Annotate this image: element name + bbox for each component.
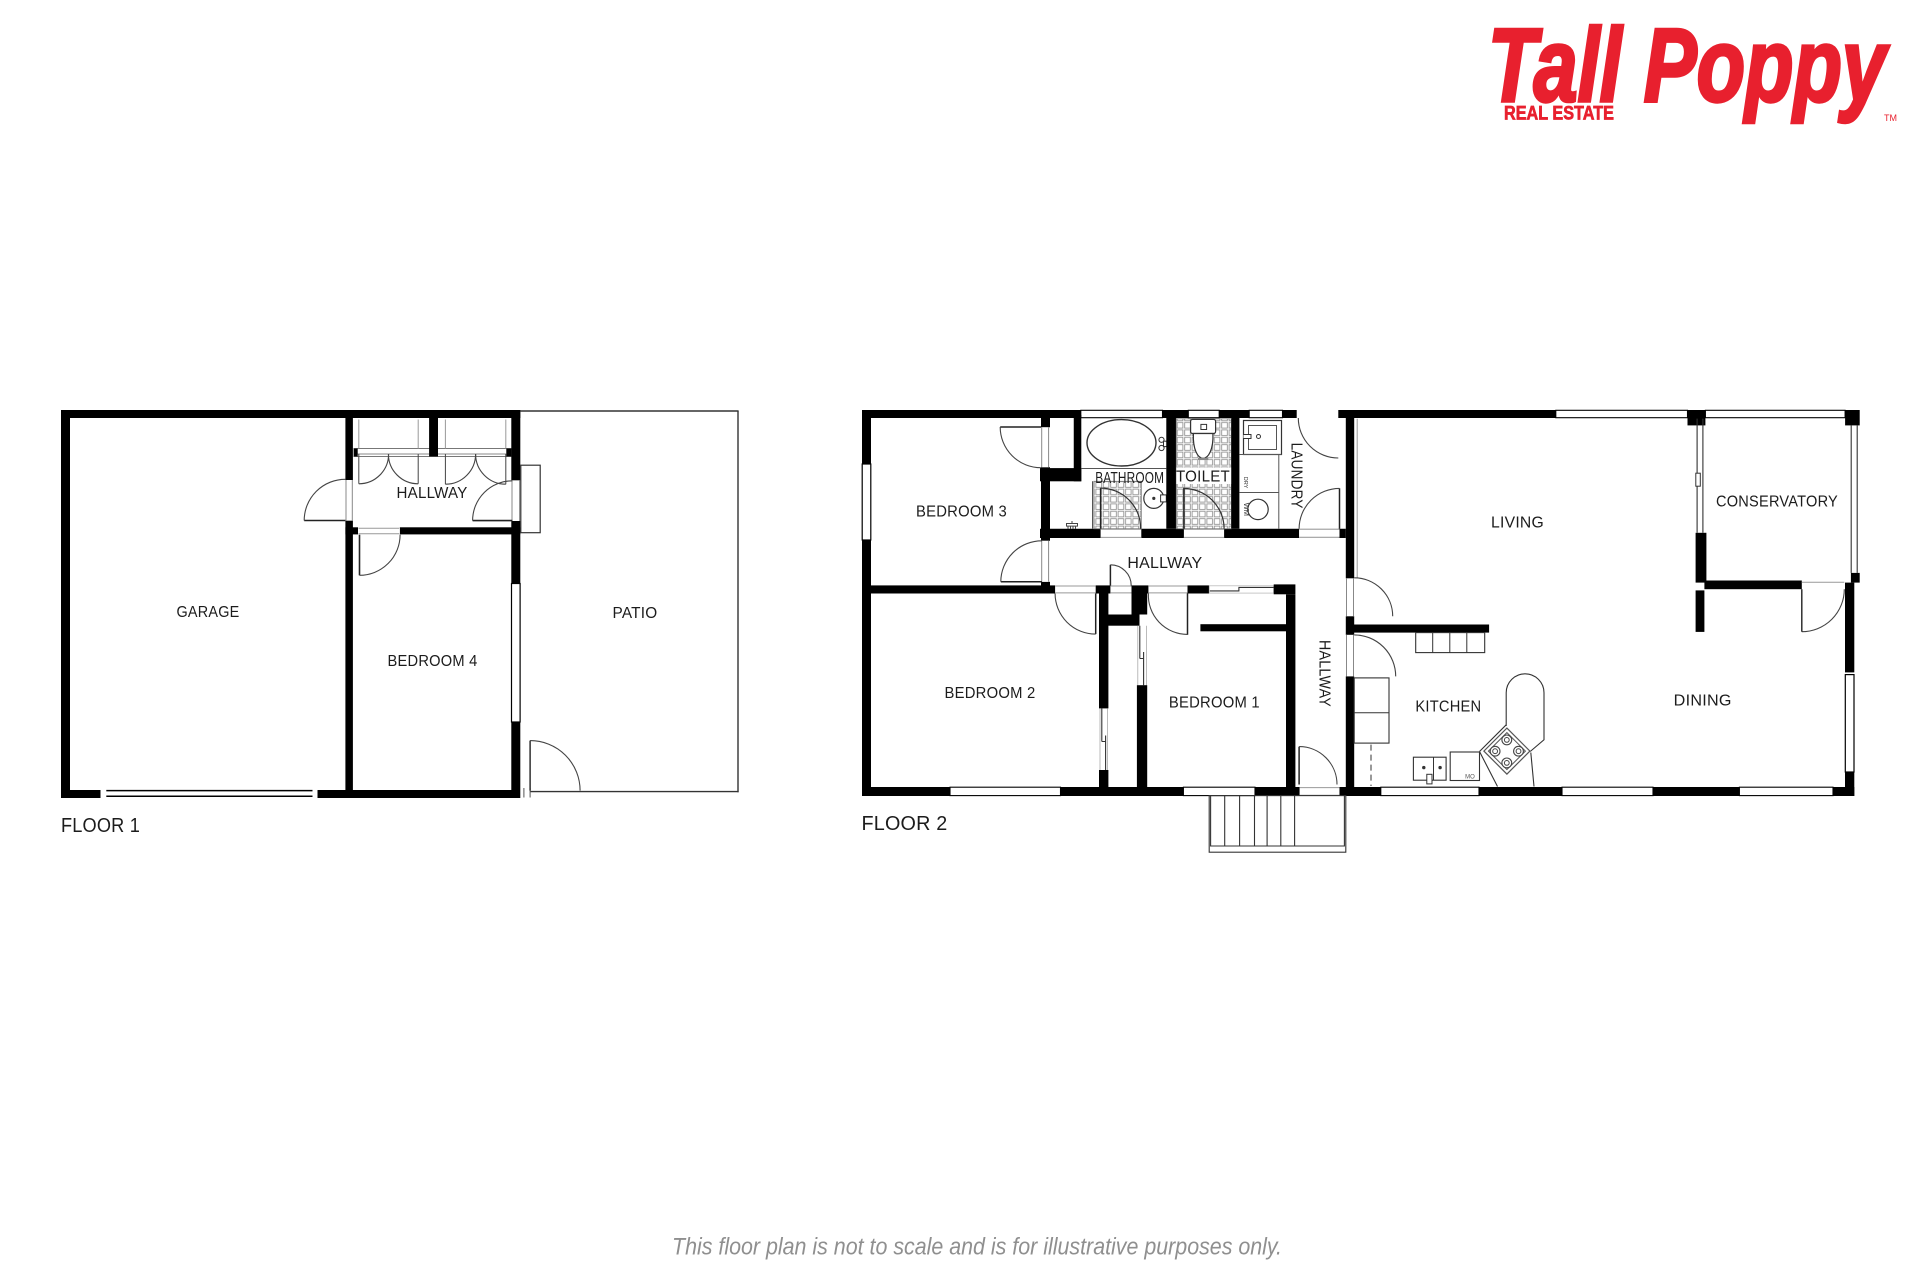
svg-text:BEDROOM 3: BEDROOM 3: [916, 504, 1007, 521]
svg-text:BEDROOM 1: BEDROOM 1: [1169, 695, 1260, 712]
svg-text:WM: WM: [1242, 503, 1251, 516]
svg-text:FLOOR 1: FLOOR 1: [61, 815, 140, 837]
svg-text:HALLWAY: HALLWAY: [1127, 555, 1202, 572]
svg-text:GARAGE: GARAGE: [177, 604, 240, 621]
svg-text:This floor plan is not to scal: This floor plan is not to scale and is f…: [672, 1234, 1282, 1261]
svg-text:MO: MO: [1465, 775, 1475, 781]
svg-text:CONSERVATORY: CONSERVATORY: [1716, 494, 1838, 511]
svg-text:BEDROOM 2: BEDROOM 2: [945, 685, 1036, 702]
svg-text:FLOOR 2: FLOOR 2: [862, 813, 948, 835]
svg-text:HALLWAY: HALLWAY: [1316, 640, 1333, 707]
svg-text:DINING: DINING: [1674, 693, 1732, 710]
svg-text:LIVING: LIVING: [1491, 515, 1544, 532]
svg-text:TOILET: TOILET: [1176, 469, 1230, 486]
svg-text:REAL ESTATE: REAL ESTATE: [1504, 103, 1614, 125]
svg-text:HALLWAY: HALLWAY: [397, 485, 468, 502]
svg-text:KITCHEN: KITCHEN: [1415, 699, 1481, 716]
svg-text:PATIO: PATIO: [613, 605, 658, 622]
svg-text:TM: TM: [1884, 113, 1897, 123]
svg-text:BEDROOM 4: BEDROOM 4: [388, 653, 478, 670]
svg-text:DRY: DRY: [1242, 477, 1248, 489]
svg-text:LAUNDRY: LAUNDRY: [1288, 443, 1305, 509]
svg-text:BATHROOM: BATHROOM: [1095, 470, 1164, 487]
